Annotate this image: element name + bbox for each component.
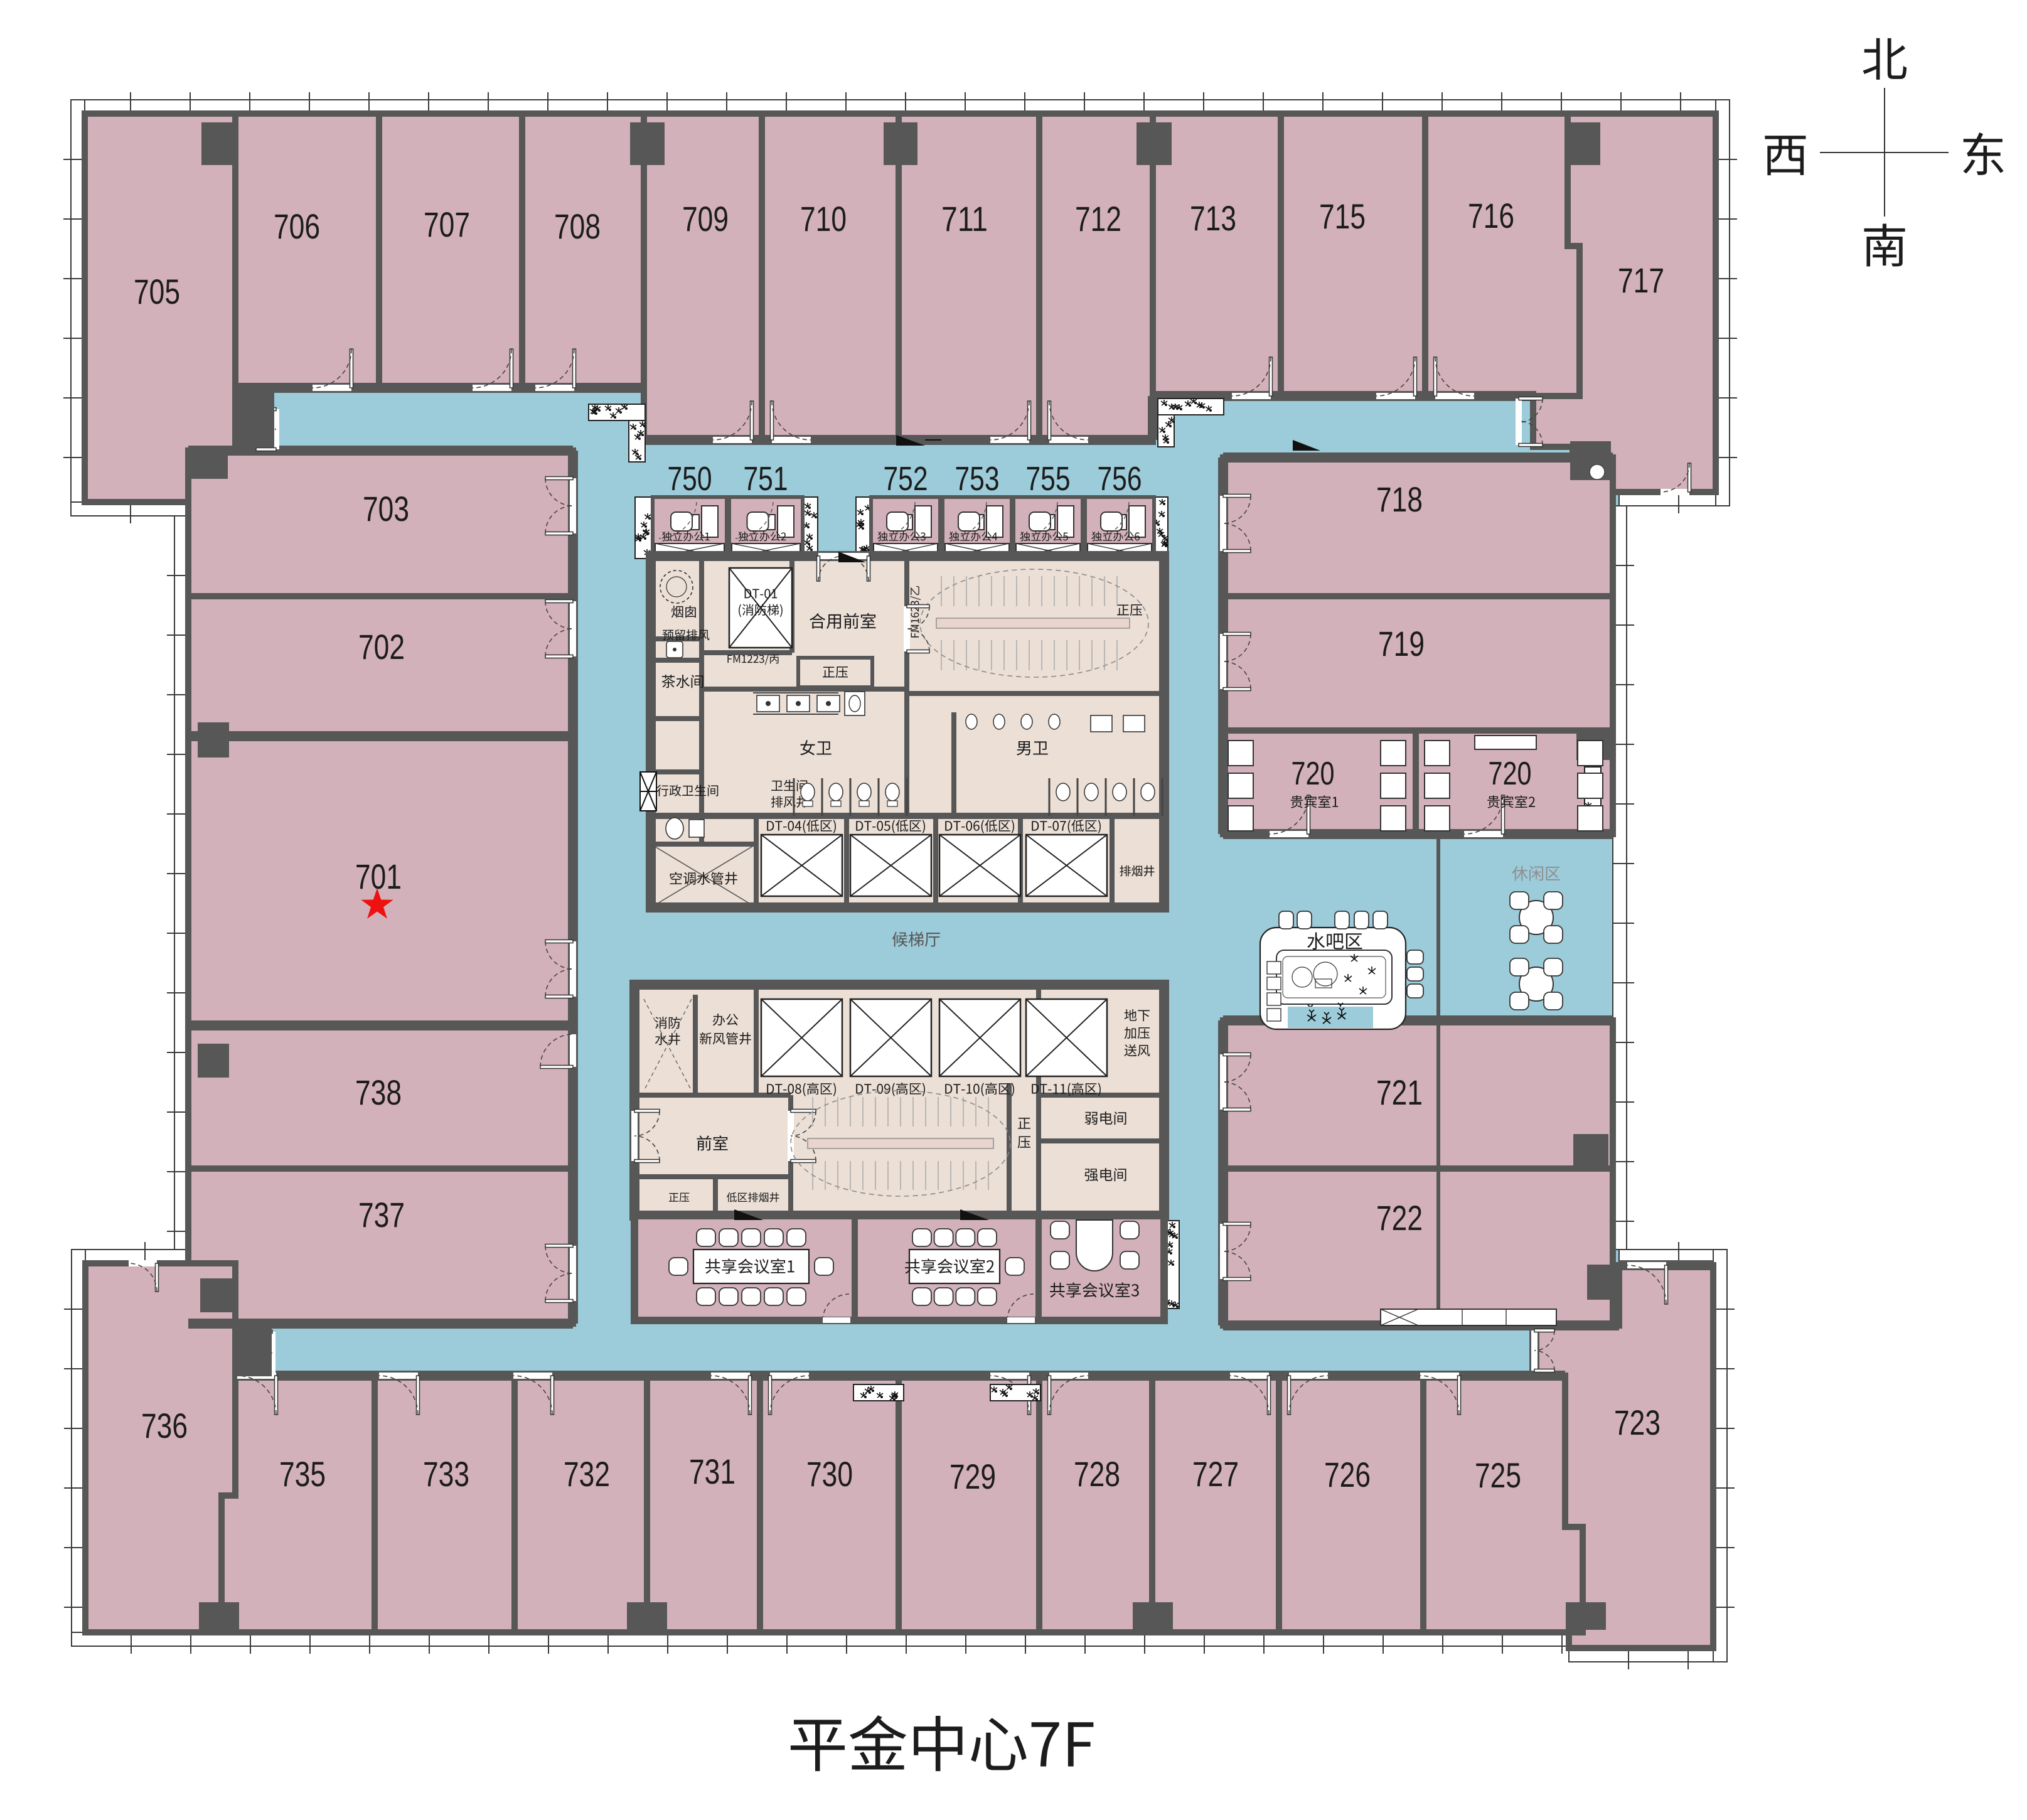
svg-text:720: 720 [1292,756,1335,792]
svg-text:708: 708 [554,206,601,246]
svg-text:722: 722 [1376,1198,1423,1238]
svg-text:712: 712 [1075,199,1121,238]
svg-text:706: 706 [274,206,320,246]
svg-text:701: 701 [355,857,402,896]
svg-text:717: 717 [1618,260,1664,300]
svg-text:727: 727 [1192,1454,1239,1494]
svg-text:707: 707 [424,205,470,244]
svg-text:755: 755 [1026,460,1071,498]
svg-text:736: 736 [141,1406,188,1445]
svg-text:716: 716 [1468,196,1514,235]
svg-text:709: 709 [682,199,729,238]
svg-text:756: 756 [1098,460,1142,498]
svg-text:733: 733 [423,1454,469,1494]
svg-text:702: 702 [358,627,405,666]
svg-text:731: 731 [689,1452,735,1491]
svg-text:737: 737 [358,1195,405,1234]
svg-text:730: 730 [806,1454,853,1494]
svg-text:752: 752 [884,460,928,498]
svg-text:738: 738 [355,1073,402,1112]
svg-text:750: 750 [668,460,712,498]
svg-text:732: 732 [564,1454,610,1494]
svg-text:711: 711 [941,199,988,238]
svg-text:726: 726 [1324,1455,1371,1494]
svg-text:735: 735 [279,1454,326,1494]
svg-text:718: 718 [1376,479,1423,519]
svg-text:703: 703 [363,489,409,528]
svg-text:721: 721 [1376,1073,1423,1112]
svg-text:720: 720 [1489,756,1532,792]
svg-text:729: 729 [949,1457,996,1496]
svg-text:719: 719 [1378,624,1425,663]
svg-text:751: 751 [744,460,788,498]
svg-text:723: 723 [1614,1403,1661,1442]
svg-text:728: 728 [1074,1454,1120,1494]
svg-text:715: 715 [1319,196,1366,236]
svg-text:725: 725 [1475,1455,1521,1495]
svg-text:753: 753 [955,460,1000,498]
svg-text:710: 710 [800,199,847,238]
svg-text:713: 713 [1190,198,1236,238]
svg-text:705: 705 [134,272,180,311]
